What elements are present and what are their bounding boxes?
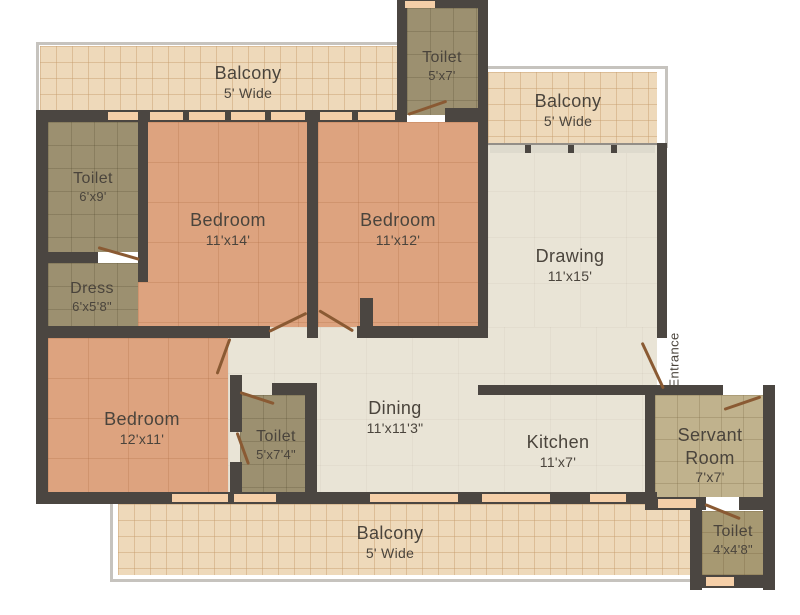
room-label-bedroom-master: Bedroom 11'x14' (190, 209, 266, 249)
window-mullion (183, 112, 189, 120)
window (234, 494, 276, 502)
balcony-bottom-frame-bottom (110, 579, 704, 582)
wall-segment (690, 500, 702, 590)
room-label-dress: Dress 6'x5'8" (70, 279, 114, 315)
room-label-toilet-left: Toilet 6'x9' (73, 169, 113, 205)
room-label-dining: Dining 11'x11'3" (367, 397, 424, 437)
window-mullion (265, 112, 271, 120)
wall-segment (357, 326, 488, 338)
balcony-frame-left (36, 42, 39, 112)
window-mullion (611, 145, 617, 153)
balcony-right-frame-top (478, 66, 668, 69)
wall-segment (360, 298, 373, 338)
wall-segment (763, 385, 775, 590)
window (658, 499, 696, 508)
wall-segment (397, 0, 407, 115)
entrance-label: Entrance (667, 332, 682, 387)
wall-segment (36, 110, 48, 504)
room-label-toilet-servant: Toilet 4'x4'8" (713, 522, 753, 558)
window (706, 577, 734, 586)
wall-segment (138, 110, 148, 282)
wall-segment (645, 385, 655, 500)
wall-segment (657, 143, 667, 338)
room-label-bedroom-second: Bedroom 11'x12' (360, 209, 436, 249)
wall-segment (307, 110, 318, 338)
balcony-frame-top (36, 42, 401, 45)
room-label-balcony-top: Balcony 5' Wide (215, 62, 282, 102)
wall-segment (36, 326, 270, 338)
room-label-kitchen: Kitchen 11'x7' (527, 431, 590, 471)
window (172, 494, 228, 502)
window (108, 112, 138, 120)
wall-segment (478, 0, 488, 338)
window (370, 494, 458, 502)
wall-segment (478, 385, 723, 395)
room-label-balcony-bottom: Balcony 5' Wide (357, 522, 424, 562)
room-label-balcony-right: Balcony 5' Wide (535, 90, 602, 130)
wall-segment (36, 492, 657, 504)
room-label-toilet-top: Toilet 5'x7' (422, 48, 462, 84)
room-label-toilet-common: Toilet 5'x7'4" (256, 427, 296, 463)
balcony-bottom-frame-left (110, 504, 113, 582)
window-mullion (568, 145, 574, 153)
window-mullion (225, 112, 231, 120)
window-mullion (525, 145, 531, 153)
window-mullion (352, 112, 358, 120)
floor-plan: Balcony 5' Wide Toilet 5'x7' Balcony 5' … (0, 0, 800, 615)
window (405, 1, 435, 8)
wall-segment (305, 383, 317, 504)
window (482, 494, 550, 502)
room-label-bedroom-third: Bedroom 12'x11' (104, 408, 180, 448)
window (590, 494, 626, 502)
balcony-right-frame-right (665, 66, 668, 148)
room-label-drawing: Drawing 11'x15' (536, 245, 605, 285)
wall-segment (230, 375, 242, 432)
room-label-servant-room: Servant Room 7'x7' (662, 424, 758, 487)
